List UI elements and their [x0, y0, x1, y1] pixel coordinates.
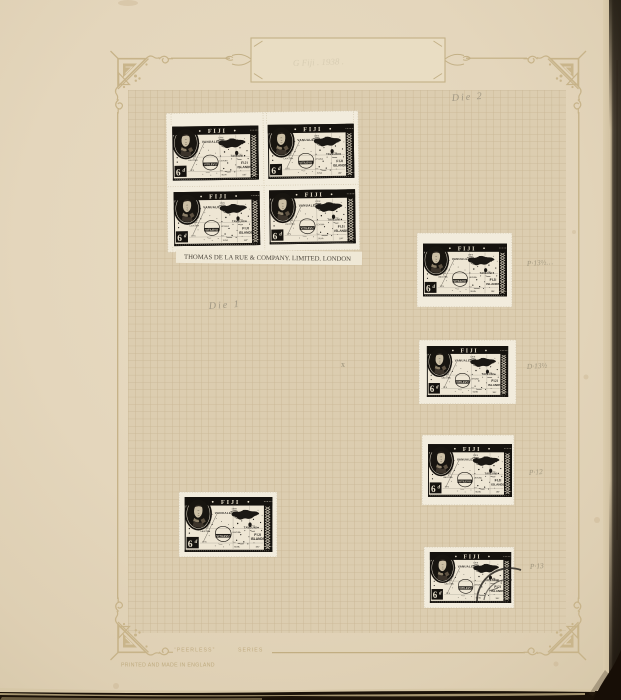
svg-text:G Fiji . 1938 .: G Fiji . 1938 . — [293, 56, 344, 68]
svg-text:Die 2: Die 2 — [450, 91, 484, 104]
svg-text:“PEERLESS”: “PEERLESS” — [174, 648, 215, 654]
svg-text:D·13½: D·13½ — [526, 361, 548, 371]
svg-text:P·13½…: P·13½… — [526, 257, 554, 268]
svg-text:P·13: P·13 — [529, 561, 545, 571]
svg-text:PRINTED AND MADE IN ENGLAND: PRINTED AND MADE IN ENGLAND — [121, 663, 215, 669]
svg-text:SERIES: SERIES — [238, 648, 263, 654]
svg-text:Die 1: Die 1 — [207, 299, 241, 312]
svg-text:x: x — [341, 360, 345, 369]
svg-text:P·12: P·12 — [528, 467, 544, 477]
